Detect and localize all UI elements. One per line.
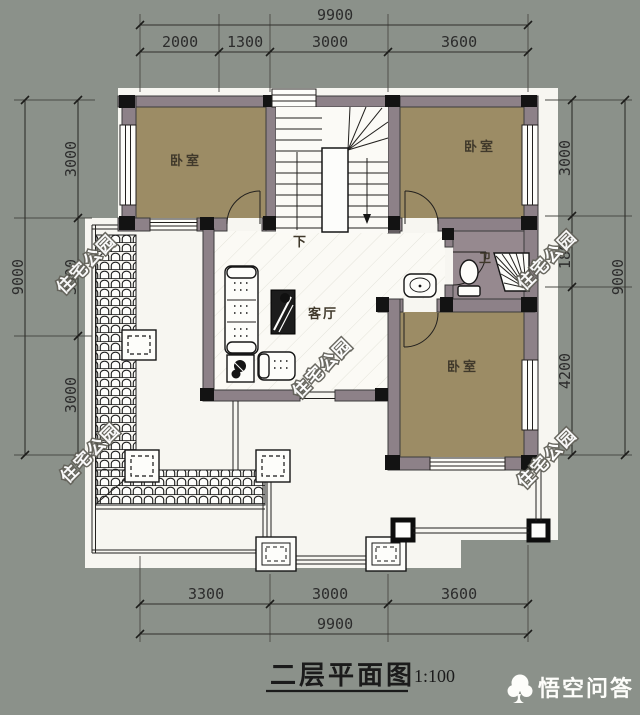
plan-scale: 1:100 [414, 666, 455, 686]
window-stair-top [272, 89, 316, 107]
floor-plan-page: 下 [0, 0, 640, 715]
roof-post [256, 450, 290, 482]
plan-title: 二层平面图 [270, 661, 415, 690]
dim-bottom-seg-2: 3000 [312, 585, 348, 603]
sink [404, 274, 436, 297]
dim-top-seg-3: 3000 [312, 33, 348, 51]
bedroom-3-floor [400, 312, 524, 457]
dim-right-seg-1: 3000 [556, 140, 574, 176]
window-bedroom2-right [522, 125, 538, 205]
balcony-post [529, 521, 548, 540]
stair-down-label: 下 [293, 234, 306, 249]
roof-post [125, 450, 159, 482]
bedroom-3-label: 卧室 [447, 359, 479, 374]
bathroom-label: 卫 [479, 251, 491, 265]
window-bedroom3-bottom [430, 458, 505, 470]
dim-right-seg-3: 4200 [556, 353, 574, 389]
armchair [258, 352, 295, 380]
bedroom-1-label: 卧室 [170, 153, 202, 168]
dim-bottom-seg-3: 3600 [441, 585, 477, 603]
bedroom-2-label: 卧室 [464, 139, 496, 154]
window-bedroom1-left [120, 125, 136, 205]
dim-top-overall: 9900 [317, 6, 353, 24]
living-room-label: 客厅 [308, 306, 338, 321]
sofa [225, 266, 258, 354]
dim-right-overall: 9000 [609, 259, 627, 295]
dim-top-seg-2: 1300 [227, 33, 263, 51]
window-bedroom1-bottom [150, 219, 197, 230]
staircase: 下 [276, 107, 388, 249]
portico-column [256, 537, 296, 571]
dim-left-seg-1: 3000 [62, 141, 80, 177]
dim-bottom-seg-1: 3300 [188, 585, 224, 603]
window-bedroom3-right [522, 360, 538, 430]
dim-top-seg-4: 3600 [441, 33, 477, 51]
dim-left-seg-3: 3000 [62, 377, 80, 413]
roof-tile-strip-bottom [96, 470, 265, 505]
wukong-logo-text: 悟空问答 [538, 676, 634, 701]
toilet [458, 260, 480, 296]
stair-void [322, 148, 348, 232]
tv-cabinet [271, 290, 295, 334]
dim-top-seg-1: 2000 [162, 33, 198, 51]
floor-plan-drawing: 下 [0, 0, 640, 715]
bedroom-2-floor [400, 107, 524, 218]
side-table-plant [227, 355, 254, 382]
balcony-post [393, 520, 413, 540]
roof-post [122, 330, 156, 360]
dim-bottom-overall: 9900 [317, 615, 353, 633]
dim-left-overall: 9000 [9, 259, 27, 295]
